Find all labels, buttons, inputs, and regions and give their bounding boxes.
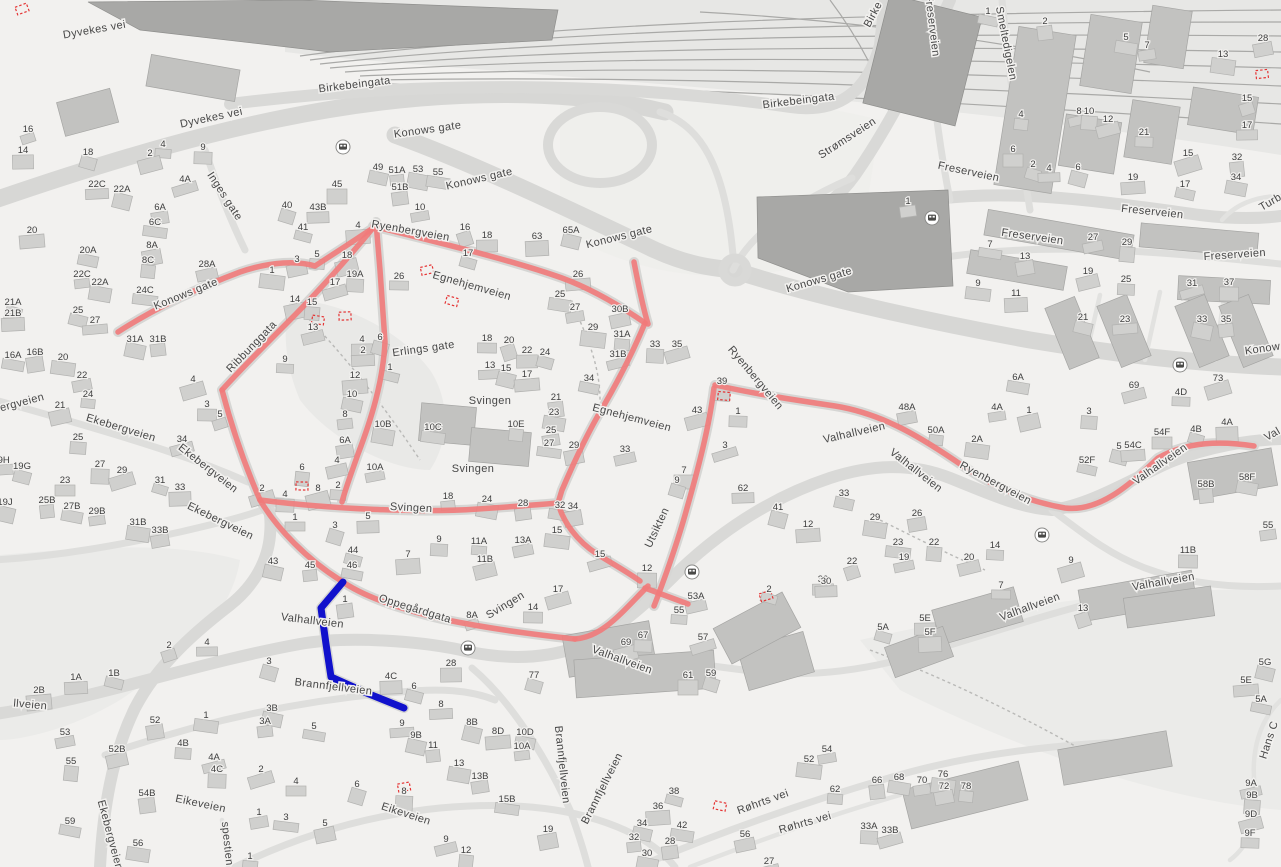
house-number: 65A [563,225,581,236]
house-number: 4B [1190,424,1202,435]
house-number: 40 [282,200,293,211]
house-number: 13 [1020,251,1031,262]
house-number: 2 [259,483,264,494]
house-number: 37 [1224,277,1235,288]
building [1119,246,1135,262]
street-label: Svingen [452,463,495,475]
house-number: 8B [466,717,478,728]
house-number: 16 [23,124,34,135]
house-number: 54C [1124,440,1142,451]
house-number: 73 [1213,373,1224,384]
house-number: 25 [73,305,84,316]
bus-stop-icon [461,641,475,655]
house-number: 23 [549,407,560,418]
house-number: 31B [150,334,167,345]
building [1081,415,1098,429]
house-number: 2 [166,640,171,651]
house-number: 14 [18,145,29,156]
house-number: 28 [1258,33,1269,44]
house-number: 2 [1030,159,1035,170]
house-number: 25 [555,289,566,300]
house-number: 13 [485,360,496,371]
house-number: 21A [5,297,23,308]
house-number: 66 [872,775,883,786]
house-number: 9 [674,475,679,486]
house-number: 55 [1263,520,1274,531]
building [1241,838,1259,849]
building [1037,25,1054,41]
house-number: 34 [637,818,648,829]
house-number: 17 [463,248,474,259]
house-number: 77 [529,670,540,681]
house-number: 54F [1154,427,1171,438]
building [1004,297,1028,312]
house-number: 34 [584,373,595,384]
building [1121,181,1146,195]
building [39,504,54,518]
building [197,409,216,421]
house-number: 3 [1086,406,1091,417]
street-label: Svingen [469,395,512,407]
house-number: 2 [766,584,771,595]
building [634,640,652,653]
building [926,546,942,561]
house-number: 5A [1255,694,1267,705]
house-number: 5G [1259,657,1272,668]
house-number: 2 [1042,16,1047,27]
house-number: 35 [672,339,683,350]
house-number: 8D [492,726,504,737]
house-number: 42 [677,820,688,831]
house-number: 7 [1144,40,1149,51]
house-number: 44 [348,545,359,556]
house-number: 1 [905,196,910,207]
house-number: 3 [294,254,299,265]
house-number: 1 [292,512,297,523]
building [514,378,540,392]
house-number: 59 [706,668,717,679]
house-number: 33 [650,339,661,350]
house-number: 7 [681,465,686,476]
house-number: 38 [669,786,680,797]
house-number: 41 [298,222,309,233]
house-number: 9 [399,718,404,729]
house-number: 56 [740,829,751,840]
building [1013,118,1028,130]
house-number: 31B [610,349,627,360]
house-number: 16A [5,350,23,361]
house-number: 15 [552,525,563,536]
house-number: 18 [482,333,493,344]
building [138,797,156,814]
bus-stop-icon [925,211,939,225]
house-number: 5 [311,721,316,732]
building [70,441,87,454]
house-number: 28 [518,498,529,509]
building [476,240,497,252]
house-number: 1B [108,668,120,679]
house-number: 22C [88,179,106,190]
house-number: 11 [1011,288,1021,299]
building [63,765,78,781]
house-number: 20 [58,352,69,363]
house-number: 58F [1239,472,1256,483]
house-number: 2A [971,434,983,445]
house-number: 17 [1242,120,1253,131]
house-number: 32 [1232,152,1243,163]
house-number: 19A [347,269,365,280]
house-number: 17 [553,584,564,595]
building [1210,57,1236,75]
building [485,735,511,750]
house-number: 78 [961,781,972,792]
building [525,240,549,256]
house-number: 21 [55,400,66,411]
building [259,274,286,291]
house-number: 6A [339,435,351,446]
house-number: 5 [365,511,370,522]
building [646,810,671,826]
house-number: 5 [314,249,319,260]
house-number: 6 [1010,144,1015,155]
house-number: 22 [522,345,533,356]
house-number: 19 [899,552,910,563]
house-number: 14 [990,540,1001,551]
house-number: 7 [998,580,1003,591]
house-number: 10C [424,422,442,433]
house-number: 30 [642,848,653,859]
house-number: 49 [373,162,384,173]
house-number: 5F [924,627,935,638]
house-number: 10B [375,419,392,430]
house-number: 2 [147,148,152,159]
building [346,279,364,293]
house-number: 18 [482,230,493,241]
house-number: 27 [544,438,555,449]
house-number: 11A [471,536,488,547]
house-number: 41 [773,502,784,513]
house-number: 9B [410,730,422,741]
house-number: 4 [1046,163,1051,174]
house-number: 56 [133,838,144,849]
building [815,586,837,598]
house-number: 9F [1244,828,1255,839]
house-number: 30B [612,304,629,315]
building [1003,154,1023,167]
house-number: 15 [595,549,606,560]
bus-stop-icon [336,140,350,154]
house-number: 4D [1175,387,1187,398]
building [357,521,379,534]
house-number: 10A [514,741,532,752]
house-number: 24 [540,347,551,358]
house-number: 4 [334,455,339,466]
house-number: 2B [33,685,45,696]
house-number: 43 [692,405,703,416]
building [351,354,375,366]
house-number: 3A [259,716,271,727]
house-number: 21 [551,392,562,403]
house-number: 19H [0,455,10,466]
house-number: 9B [1246,790,1258,801]
building [1236,130,1257,140]
building [19,234,45,249]
house-number: 22A [114,184,132,195]
house-number: 35 [1221,314,1232,325]
building [175,747,192,759]
house-number: 13 [1078,603,1089,614]
building [991,590,1010,599]
building [458,854,473,867]
building [1081,115,1098,130]
house-number: 31A [127,334,145,345]
house-number: 43 [268,556,279,567]
house-number: 7 [405,549,410,560]
house-number: 9D [1245,809,1257,820]
house-number: 6C [149,217,161,228]
house-number: 4 [204,637,209,648]
house-number: 5E [919,613,931,624]
house-number: 31B [130,517,147,528]
house-number: 1A [70,672,82,683]
building [302,569,317,581]
house-number: 28A [199,259,217,270]
building [958,790,973,802]
house-number: 8 [401,786,406,797]
house-number: 69 [1129,380,1140,391]
house-number: 4C [385,671,397,682]
house-number: 31 [155,475,166,486]
house-number: 8A [146,240,158,251]
house-number: 19J [0,497,13,508]
house-number: 52 [150,715,161,726]
building [1121,449,1146,462]
house-number: 33 [1197,314,1208,325]
house-number: 12 [350,370,361,381]
house-number: 4B [177,738,189,749]
building [516,355,537,368]
building [1,317,25,331]
house-number: 4A [991,402,1003,413]
house-number: 3 [266,656,271,667]
house-number: 11B [1180,545,1196,556]
building [257,725,273,738]
house-number: 23 [893,537,904,548]
house-number: 8C [142,255,154,266]
building [1117,284,1135,296]
building [440,668,461,682]
building [918,636,942,652]
house-number: 12 [1103,114,1114,125]
house-number: 58B [1198,479,1215,490]
house-number: 54 [822,744,833,755]
building [55,485,75,496]
house-number: 5E [1240,675,1252,686]
house-number: 46 [347,560,358,571]
house-number: 15 [501,363,512,374]
house-number: 6 [377,332,382,343]
house-number: 53 [60,727,71,738]
building [396,558,421,575]
building [150,343,166,357]
house-number: 1 [256,807,261,818]
building [869,784,886,800]
house-number: 22 [847,556,858,567]
building [146,724,165,740]
house-number: 24 [83,389,94,400]
house-number: 52 [804,754,815,765]
house-number: 5 [1123,32,1128,43]
house-number: 27B [64,501,81,512]
house-number: 39 [717,376,728,387]
building [1216,427,1239,443]
house-number: 4 [160,139,165,150]
house-number: 1 [342,594,347,605]
house-number: 12 [803,519,814,530]
house-number: 17 [522,369,533,380]
house-number: 55 [674,605,685,616]
house-number: 13A [515,535,533,546]
building [425,749,440,762]
house-number: 22 [77,370,88,381]
house-number: 51B [392,182,409,193]
building [514,507,532,521]
house-number: 4 [293,776,298,787]
house-number: 4 [1018,109,1023,120]
building [508,428,523,441]
house-number: 33 [620,444,631,455]
house-number: 70 [917,775,928,786]
house-number: 7 [987,239,992,250]
building [327,189,347,204]
house-number: 32 [629,832,640,843]
house-number: 20 [27,225,38,236]
house-number: 3 [204,399,209,410]
house-number: 54B [139,788,156,799]
house-number: 26 [573,269,584,280]
house-number: 24 [482,494,493,505]
house-number: 8 [342,409,347,420]
house-number: 36 [653,801,664,812]
house-number: 26 [394,271,405,282]
house-number: 28 [446,658,457,669]
house-number: 19 [1128,172,1139,183]
house-number: 4A [179,174,191,185]
house-number: 9 [975,278,980,289]
house-number: 18 [83,147,94,158]
house-number: 15 [307,297,318,308]
house-number: 62 [738,483,749,494]
building [477,343,496,353]
building [430,544,448,557]
house-number: 55 [66,756,77,767]
house-number: 33A [861,821,879,832]
house-number: 19 [1083,266,1094,277]
house-number: 5 [1116,441,1121,452]
house-number: 16 [460,222,471,233]
house-number: 6A [1012,372,1024,383]
map-viewport[interactable]: 16141822C22A2020A22C22A6A6C8A8C28A4294A4… [0,0,1281,867]
house-number: 11 [428,740,438,751]
bus-stop-icon [1173,358,1187,372]
house-number: 4A [1221,417,1233,428]
house-number: 15 [1183,148,1194,159]
house-number: 13 [454,758,465,769]
house-number: 25 [546,425,557,436]
house-number: 22C [73,269,91,280]
house-number: 25B [39,495,56,506]
house-number: 12 [642,563,653,574]
house-number: 59 [65,816,76,827]
house-number: 51A [389,165,407,176]
map-canvas[interactable]: 16141822C22A2020A22C22A6A6C8A8C28A4294A4… [0,0,1281,867]
house-number: 8A [466,610,478,621]
house-number: 4 [359,334,364,345]
house-number: 5A [877,622,889,633]
building [276,364,293,374]
house-number: 45 [332,179,343,190]
house-number: 31 [1187,278,1198,289]
building [732,493,754,504]
house-number: 15 [1242,93,1253,104]
house-number: 20 [964,552,975,563]
house-number: 20A [80,245,98,256]
house-number: 13 [308,322,319,333]
building [64,681,88,694]
building [285,522,305,531]
house-number: 6 [1075,162,1080,173]
house-number: 18 [443,491,454,502]
house-number: 10 [347,389,358,400]
house-number: 3 [722,440,727,451]
house-number: 4 [282,489,287,500]
house-number: 27 [95,459,106,470]
building [391,191,409,206]
house-number: 9 [200,142,205,153]
house-number: 21B [5,308,22,319]
building [208,774,226,789]
building [336,603,354,619]
house-number: 1 [247,851,252,862]
house-number: 10 [1084,106,1095,117]
house-number: 52B [109,744,126,755]
house-number: 19 [543,824,554,835]
street-label: Svingen [390,501,433,515]
house-number: 8 [315,483,320,494]
house-number: 9 [443,834,448,845]
house-number: 29 [1122,237,1133,248]
building [1135,137,1153,148]
house-number: 22A [92,277,110,288]
building [1218,323,1234,338]
house-number: 2 [258,764,263,775]
house-number: 1 [735,406,740,417]
house-number: 34 [1231,172,1242,183]
house-number: 16B [27,347,44,358]
house-number: 48A [899,402,917,413]
house-number: 63 [532,231,543,242]
building [85,188,108,199]
building [12,155,33,169]
house-number: 29 [569,440,580,451]
house-number: 5 [217,409,222,420]
house-number: 13B [472,771,489,782]
house-number: 29 [117,465,128,476]
house-number: 33 [839,488,850,499]
house-number: 69 [621,637,632,648]
house-number: 29 [870,512,881,523]
house-number: 24C [136,285,154,296]
